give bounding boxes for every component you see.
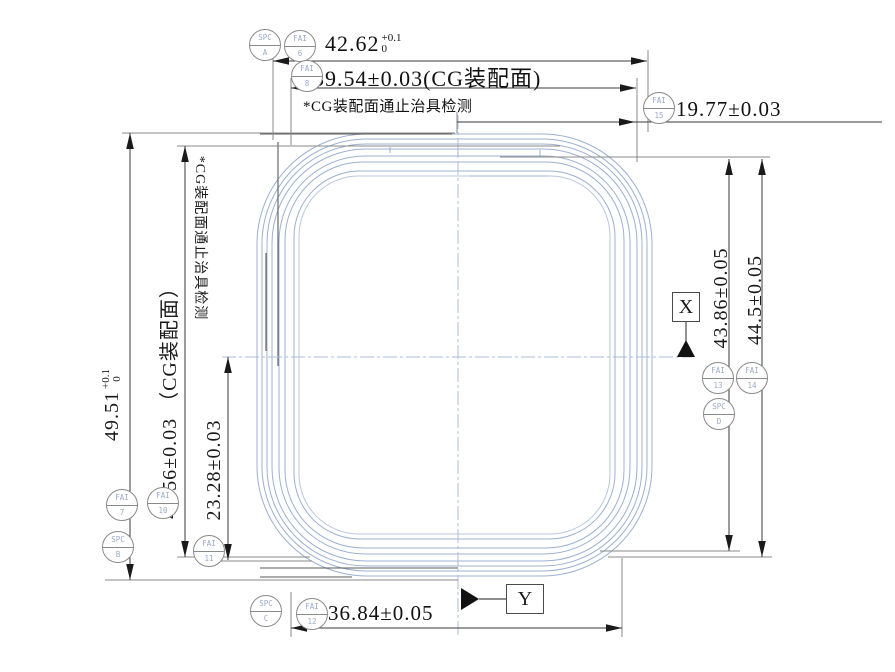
dim-left-height-value: 49.51 bbox=[100, 391, 124, 441]
balloon-spc-c: SPC C bbox=[250, 595, 282, 627]
balloon-fai-14: FAI 14 bbox=[736, 362, 768, 394]
datum-x-triangle bbox=[677, 340, 695, 357]
balloon-fai-6: FAI 6 bbox=[284, 30, 316, 62]
balloon-fai-15: FAI 15 bbox=[643, 92, 675, 124]
datum-x-box: X bbox=[672, 292, 700, 322]
balloon-fai-11: FAI 11 bbox=[193, 535, 225, 567]
dim-half-height: 23.28±0.03 bbox=[202, 400, 226, 540]
balloon-fai-10: FAI 10 bbox=[147, 487, 179, 519]
dim-top-width-tolerance: +0.1 0 bbox=[382, 33, 402, 55]
part-outline bbox=[257, 134, 652, 576]
balloon-fai-8: FAI 8 bbox=[291, 60, 323, 92]
note-left: *CG装配面通止治具检测 bbox=[187, 153, 211, 323]
datum-y-triangle bbox=[461, 588, 479, 610]
balloon-spc-b: SPC B bbox=[102, 531, 134, 563]
balloon-spc-a: SPC A bbox=[249, 29, 281, 61]
dim-top-width-value: 42.62 bbox=[325, 31, 380, 57]
dim-right-height-inner: 43.86±0.05 bbox=[709, 233, 733, 363]
balloon-fai-12: FAI 12 bbox=[296, 598, 328, 630]
balloon-fai-7: FAI 7 bbox=[106, 489, 138, 521]
balloon-spc-d: SPC D bbox=[703, 398, 735, 430]
datum-symbols bbox=[461, 322, 695, 610]
dim-top-width: 42.62 +0.1 0 bbox=[325, 31, 401, 57]
dim-left-height: 49.51 +0.1 0 bbox=[100, 345, 124, 465]
engineering-drawing: 42.62 +0.1 0 39.54±0.03(CG装配面) *CG装配面通止治… bbox=[0, 0, 895, 672]
note-top: *CG装配面通止治具检测 bbox=[303, 95, 472, 116]
datum-y-box: Y bbox=[506, 584, 544, 614]
dim-right-offset: 19.77±0.03 bbox=[676, 97, 782, 122]
dim-bottom-width: 36.84±0.05 bbox=[328, 601, 434, 626]
balloon-fai-13: FAI 13 bbox=[702, 362, 734, 394]
dim-left-height-tolerance: +0.1 0 bbox=[101, 369, 123, 389]
dim-cg-width: 39.54±0.03(CG装配面) bbox=[313, 61, 541, 93]
dim-right-height-outer: 44.5±0.05 bbox=[743, 240, 767, 360]
